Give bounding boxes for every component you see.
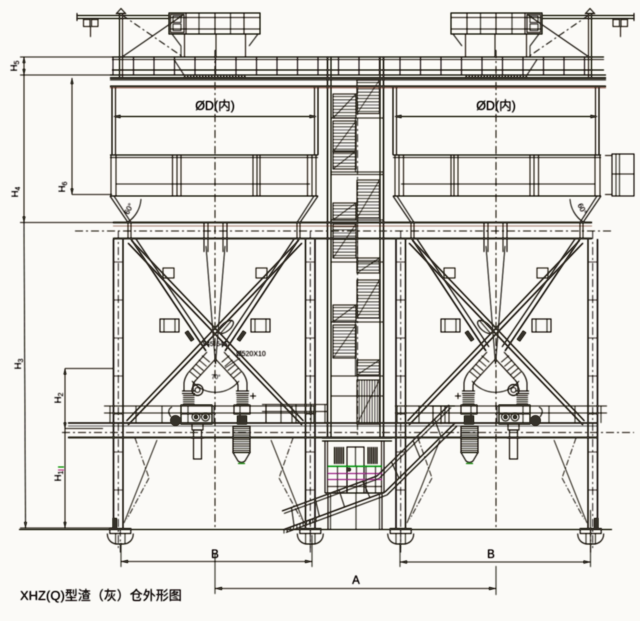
svg-text:A: A [352,575,360,587]
svg-text:Ø520X10: Ø520X10 [236,351,266,358]
svg-text:XHZ(Q)型渣（灰）仓外形图: XHZ(Q)型渣（灰）仓外形图 [20,588,182,603]
svg-text:B: B [487,549,495,561]
svg-text:545’ 545: 545’ 545 [203,341,228,348]
svg-text:70°: 70° [211,375,221,381]
svg-text:ØD(内): ØD(内) [476,99,516,113]
svg-text:ØD(内): ØD(内) [195,99,235,113]
